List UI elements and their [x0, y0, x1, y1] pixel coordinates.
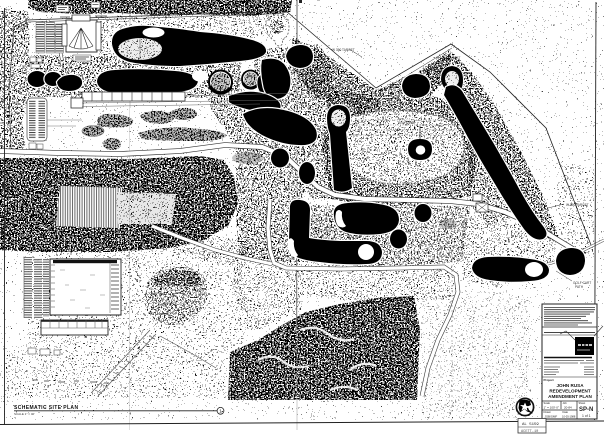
svg-text:PLAYFIELD: PLAYFIELD [398, 121, 416, 125]
svg-text:W 350 TARGET: W 350 TARGET [566, 203, 589, 207]
svg-text:10-05-1988: 10-05-1988 [562, 415, 576, 419]
svg-text:LIGHT POLE: LIGHT POLE [423, 69, 442, 73]
svg-text:ACETT-10: ACETT-10 [521, 430, 538, 434]
svg-text:1" = 100'-0": 1" = 100'-0" [544, 406, 559, 410]
svg-text:Date: Date [563, 410, 569, 414]
svg-text:Drawn: Drawn [544, 410, 552, 414]
svg-text:REDEVELOPMENT: REDEVELOPMENT [549, 389, 591, 394]
svg-text:1 of 1: 1 of 1 [582, 414, 591, 418]
svg-text:Scale: Scale [544, 401, 551, 405]
svg-text:SP-N: SP-N [579, 407, 593, 413]
svg-text:AMENDMENT PLAN: AMENDMENT PLAN [548, 394, 592, 399]
svg-text:W BOAT: W BOAT [12, 27, 24, 31]
svg-text:SCHEMATIC SITE PLAN: SCHEMATIC SITE PLAN [14, 405, 78, 411]
svg-text:20-84: 20-84 [564, 406, 572, 410]
svg-text:Project: Project [544, 378, 554, 382]
svg-text:SCALE 1" = 40': SCALE 1" = 40' [14, 412, 35, 416]
svg-text:Sheet: Sheet [579, 401, 586, 405]
svg-text:JSB/SMF: JSB/SMF [545, 415, 558, 419]
svg-text:PATH: PATH [575, 285, 584, 289]
svg-text:AL 5159: AL 5159 [522, 423, 539, 427]
svg-text:Job: Job [563, 401, 568, 405]
svg-text:W 350 TARGET: W 350 TARGET [332, 48, 355, 52]
svg-text:W 1000 TARGET: W 1000 TARGET [436, 56, 461, 60]
svg-text:JOHN RUSA: JOHN RUSA [556, 383, 584, 388]
